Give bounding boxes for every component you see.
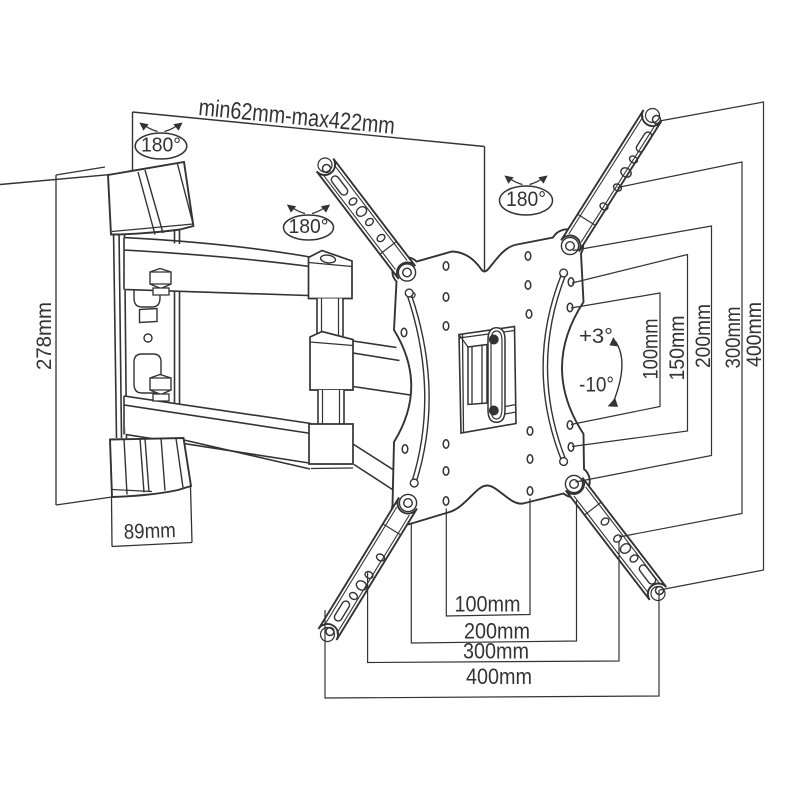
svg-text:89mm: 89mm [123,519,176,544]
svg-text:-10°: -10° [579,374,614,397]
svg-text:400mm: 400mm [466,664,532,689]
svg-text:150mm: 150mm [666,316,689,381]
svg-text:180°: 180° [141,135,181,157]
svg-text:400mm: 400mm [743,302,766,367]
svg-text:100mm: 100mm [640,319,663,380]
svg-text:100mm: 100mm [455,592,521,617]
svg-text:180°: 180° [289,216,329,238]
svg-text:300mm: 300mm [722,307,745,369]
svg-text:200mm: 200mm [692,304,715,368]
svg-text:180°: 180° [506,188,546,211]
svg-text:+3°: +3° [579,325,613,348]
svg-text:300mm: 300mm [463,639,529,664]
svg-text:278mm: 278mm [33,302,56,370]
